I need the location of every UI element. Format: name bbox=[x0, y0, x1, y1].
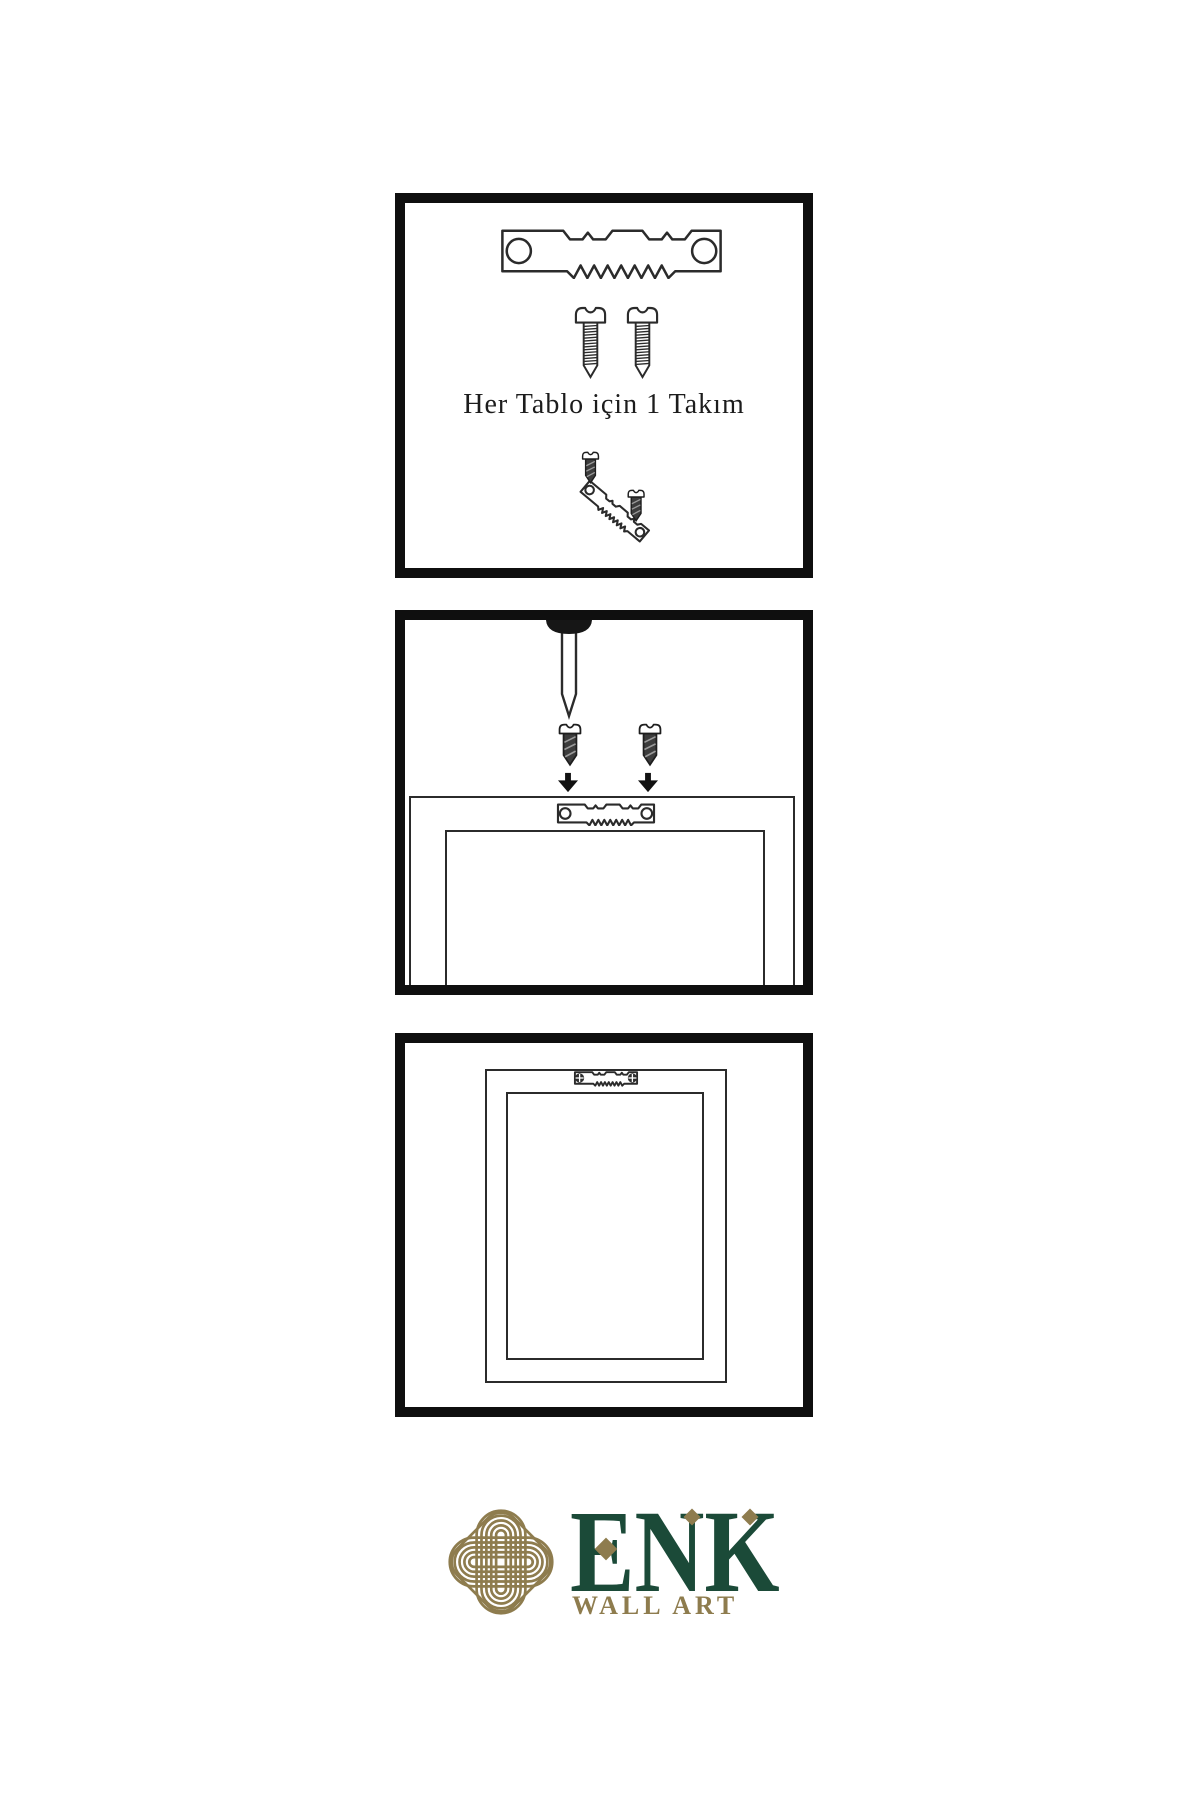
dark-screw-icon bbox=[628, 490, 644, 520]
down-arrow-icon bbox=[638, 772, 658, 793]
screw-icon bbox=[625, 305, 660, 381]
dark-screw-icon bbox=[583, 452, 599, 482]
dark-screw-icon bbox=[555, 723, 585, 768]
step3-panel bbox=[395, 1033, 813, 1417]
step2-panel bbox=[395, 610, 813, 995]
dark-screw-icon bbox=[635, 723, 665, 768]
screw-icon bbox=[573, 305, 608, 381]
phillips-screw-head-icon bbox=[628, 1073, 637, 1082]
hung-frame-inner-panel bbox=[506, 1092, 704, 1360]
tilted-hanger-kit-icon bbox=[570, 451, 665, 551]
instruction-sheet: Her Tablo için 1 Takım bbox=[0, 0, 1200, 1800]
knot-logo-icon bbox=[440, 1493, 562, 1631]
hung-frame bbox=[485, 1069, 727, 1383]
step1-panel: Her Tablo için 1 Takım bbox=[395, 193, 813, 578]
sawtooth-hanger-icon bbox=[555, 801, 657, 826]
down-arrow-icon bbox=[558, 772, 578, 793]
brand-tagline: WALL ART bbox=[572, 1591, 738, 1621]
sawtooth-hanger-icon bbox=[495, 223, 728, 279]
wall-nail-icon bbox=[545, 620, 593, 720]
frame-back-inner-panel bbox=[445, 830, 765, 995]
step1-caption: Her Tablo için 1 Takım bbox=[405, 389, 803, 421]
phillips-screw-head-icon bbox=[575, 1073, 584, 1082]
brand-logo: ENK WALL ART bbox=[440, 1493, 860, 1643]
mounted-hanger-icon bbox=[573, 1070, 639, 1087]
brand-logotype: ENK WALL ART bbox=[570, 1507, 830, 1637]
